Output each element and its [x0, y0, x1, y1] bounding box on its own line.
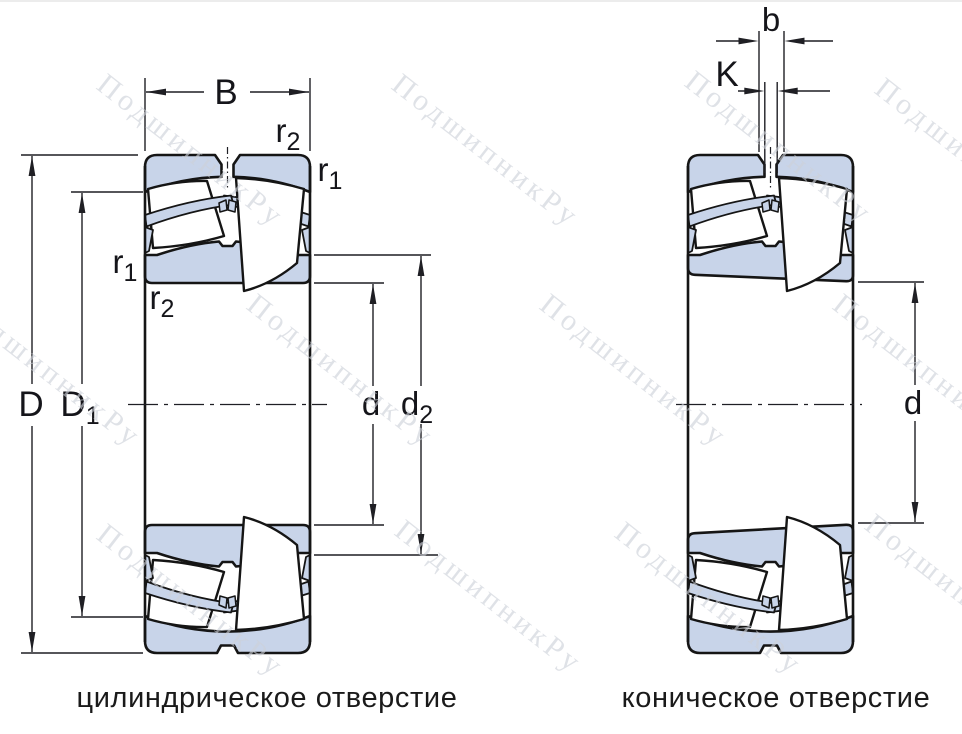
caption-tapered-bore: коническое отверстие — [622, 682, 931, 714]
watermark: ПодшипникРу — [241, 288, 442, 455]
label-r2-top: r2 — [276, 112, 301, 156]
label-D: D — [18, 385, 43, 424]
label-b: b — [762, 1, 780, 38]
label-r1-left: r1 — [113, 243, 138, 287]
watermark: ПодшипникРу — [534, 288, 735, 455]
label-r1-right: r1 — [318, 151, 343, 195]
bearing-diagram-canvas: B r2 r1 r1 r2 D D1 d d2 b K d цилиндриче… — [0, 0, 962, 734]
bearing-drawing-page: B r2 r1 r1 r2 D D1 d d2 b K d цилиндриче… — [0, 0, 962, 734]
watermark: ПодшипникРу — [827, 288, 962, 455]
watermark: ПодшипникРу — [869, 72, 962, 239]
label-B: B — [214, 73, 237, 112]
watermark: ПодшипникРу — [0, 288, 148, 455]
caption-cylindrical-bore: цилиндрическое отверстие — [77, 682, 458, 714]
watermark: ПодшипникРу — [859, 508, 962, 675]
label-d-right: d — [904, 384, 922, 421]
watermark: ПодшипникРу — [386, 68, 587, 235]
watermark: ПодшипникРу — [389, 514, 590, 681]
label-r2-left: r2 — [150, 279, 175, 323]
